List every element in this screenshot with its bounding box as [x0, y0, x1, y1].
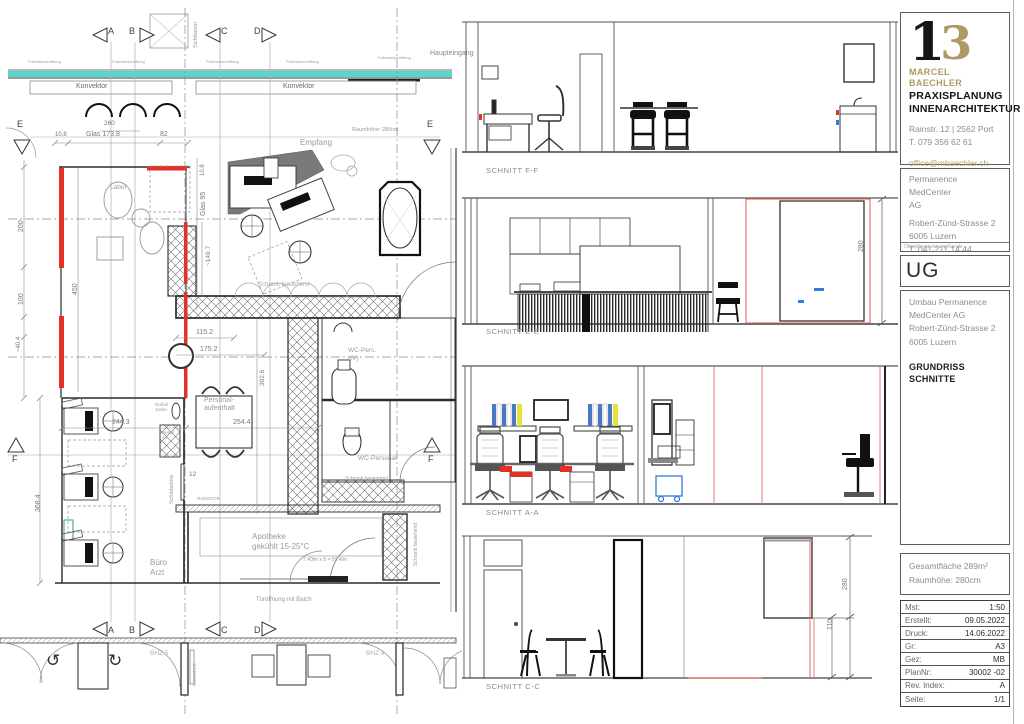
- dim-368-4: 368.4: [35, 494, 42, 512]
- row-label: Druck:: [905, 629, 928, 638]
- table-row: Gez: MB: [901, 653, 1009, 666]
- label-folien-2: Folienbeschriftung: [112, 60, 145, 65]
- logo-box: 1 3 MARCEL BAECHLER PRAXISPLANUNG INNENA…: [900, 12, 1010, 165]
- label-tueroeffnung: Türöffnung mit Batch: [256, 597, 312, 604]
- ee-red-room-outline: [746, 196, 886, 326]
- sichtbeton-element: [150, 14, 188, 48]
- row-label: Seite:: [905, 695, 925, 704]
- label-folien-1: Folienbeschriftung: [28, 60, 61, 65]
- aa-black-chair: [842, 434, 874, 497]
- oval-fixture: [380, 182, 420, 255]
- room-label-konvektor-left: Konvektor: [76, 83, 108, 91]
- section-marker-d-top: D: [254, 27, 261, 36]
- row-value: 30002 -02: [969, 668, 1005, 677]
- row-label: Mst:: [905, 603, 920, 612]
- cc-door: [484, 540, 522, 678]
- room-label-konvektor-right: Konvektor: [283, 83, 315, 91]
- table-row: Seite: 1/1: [901, 693, 1009, 706]
- aa-monitor: [520, 436, 536, 462]
- row-label: Rev. Index:: [905, 681, 945, 690]
- section-marker-e-left: E: [17, 120, 23, 129]
- rotation-arrow-cw-icon: ↻: [108, 652, 122, 669]
- exam-room-furniture: [6, 104, 180, 260]
- cc-tall-cabinet: [614, 540, 642, 678]
- plan-sheet: ↺ ↻ Konvektor Konvektor Sichtbeton Haupt…: [0, 0, 1024, 724]
- aa-lab-unit: [648, 400, 694, 502]
- ff-stools: [620, 102, 698, 150]
- facade-window-band: [8, 70, 452, 94]
- label-schrank-apotheke: Schrank bestehend: [413, 523, 419, 566]
- cc-table-chairs: [520, 630, 609, 677]
- rotation-arrow-ccw-icon: ↺: [46, 652, 60, 669]
- dim-glas95-10-8: 10.8: [200, 164, 206, 176]
- label-regal: Regal A4: [162, 430, 174, 441]
- client-box: Permanence MedCenter AG Robert-Zünd-Stra…: [900, 168, 1010, 252]
- area-height: Raumhöhe: 280cm: [909, 574, 1001, 588]
- row-value: 09.05.2022: [965, 616, 1005, 625]
- label-sichtbeton: Sichtbeton: [193, 22, 200, 48]
- section-marker-a-bottom: A: [108, 626, 114, 635]
- section-marker-f-right: F: [428, 455, 434, 464]
- table-row: Mst: 1:50: [901, 601, 1009, 614]
- schnitt-ff-drawing: [462, 14, 898, 168]
- label-folien-5: Folienbeschriftung: [378, 56, 411, 61]
- ee-chair: [716, 282, 740, 322]
- dim-149-7: ~149.7: [206, 246, 213, 266]
- label-schrank-wc: Schrank bestehend: [345, 476, 388, 482]
- row-label: Gez:: [905, 655, 922, 664]
- area-total: Gesamtfläche 289m²: [909, 560, 1001, 574]
- row-label: Erstellt:: [905, 616, 932, 625]
- section-marker-a-top: A: [108, 27, 114, 36]
- dim-254-4: 254.4: [233, 419, 251, 426]
- table-row: PlanNr: 30002 -02: [901, 666, 1009, 679]
- room-label-apotheke: Apotheke gekühlt 15-25°C: [252, 532, 309, 551]
- floor-plan-linework: [0, 0, 462, 724]
- row-value: 1:50: [989, 603, 1005, 612]
- schnitt-aa-drawing: [462, 360, 898, 518]
- aa-red-wall-lines: [714, 366, 880, 504]
- section-marker-b-bottom: B: [129, 626, 135, 635]
- row-value: 1/1: [994, 695, 1005, 704]
- company-line2: INNENARCHITEKTUR: [909, 103, 1001, 116]
- schnitt-cc-drawing: [462, 528, 898, 696]
- ff-desk-workplace: [479, 66, 563, 152]
- dim-115-2: 115.2: [196, 329, 213, 336]
- company-line1: PRAXISPLANUNG: [909, 90, 1001, 103]
- schnitt-ee-drawing: [462, 192, 898, 332]
- room-label-labor: Labor: [110, 184, 127, 192]
- label-schnitt-cc: SCHNITT C-C: [486, 682, 540, 691]
- ee-reception-counter: [510, 218, 712, 332]
- page-border: [1013, 0, 1014, 724]
- project-box: Umbau Permanence MedCenter AG Robert-Zün…: [900, 290, 1010, 545]
- room-label-bhz4: BHZ 4: [366, 650, 384, 658]
- client-name: Permanence MedCenter AG: [909, 173, 1001, 213]
- area-box: Gesamtfläche 289m² Raumhöhe: 280cm: [900, 553, 1010, 595]
- row-value: 14.06.2022: [965, 629, 1005, 638]
- room-label-buero-arzt: Büro Arzt: [150, 558, 167, 577]
- dim-glas-173-8: Glas 173.8: [86, 131, 120, 138]
- client-street: Robert-Zünd-Strasse 2: [909, 217, 1001, 230]
- label-schnitt-aa: SCHNITT A-A: [486, 508, 539, 517]
- room-label-wc-pers: WC-Pers. (IV): [348, 347, 376, 363]
- label-radiator-2: RADIATOR: [192, 663, 197, 686]
- table-row: Gr: A3: [901, 640, 1009, 653]
- plan-info-table: Mst: 1:50 Erstellt: 09.05.2022 Druck: 14…: [900, 600, 1010, 707]
- project-address: Umbau Permanence MedCenter AG Robert-Zün…: [909, 296, 1001, 349]
- table-row: Druck: 14.06.2022: [901, 627, 1009, 640]
- dim-200: 200: [18, 220, 25, 232]
- table-row: Erstellt: 09.05.2022: [901, 614, 1009, 627]
- aa-office-chairs: [475, 427, 625, 502]
- row-label: PlanNr:: [905, 668, 932, 677]
- dim-244-3: 244.3: [112, 419, 130, 426]
- center-lines: [8, 8, 456, 716]
- dim-40-4: ~40.4: [16, 337, 22, 352]
- label-schnitt-ff: SCHNITT F-F: [486, 166, 539, 175]
- guide-lines: [111, 42, 270, 622]
- section-marker-f-left: F: [12, 455, 18, 464]
- label-folien-4: Folienbeschriftung: [286, 60, 319, 65]
- label-radiator: RADIATOR: [197, 496, 220, 501]
- company-phone: T. 079 356 62 61: [909, 136, 1001, 149]
- dim-ee-280: 280: [858, 240, 865, 252]
- dim-cc-110: 110: [827, 619, 834, 630]
- row-label: Gr:: [905, 642, 916, 651]
- room-label-wc-personal: WC-Personal: [358, 455, 397, 463]
- label-raumhoehe: Raumhöhe: 280cm: [352, 127, 398, 134]
- ff-door: [580, 54, 602, 152]
- room-label-personalaufenthalt: Personal- aufenthalt: [204, 397, 235, 414]
- company-logo: 1 3: [909, 21, 1001, 65]
- table-row: Rev. Index: A: [901, 680, 1009, 693]
- logo-monogram-gold: 3: [940, 24, 972, 63]
- dim-100: 100: [18, 293, 25, 305]
- dim-82: 82: [160, 131, 168, 138]
- label-apotheke-dim: 7.40lm x 8 = 59.4lm: [303, 557, 347, 563]
- room-label-bhz5: BHZ 5: [150, 650, 168, 658]
- label-notfall: Notfall Jacke: [155, 402, 168, 413]
- dim-392-6: 392.6: [260, 370, 267, 386]
- section-marker-b-top: B: [129, 27, 135, 36]
- ff-cabinet: [836, 44, 876, 152]
- label-folien-3: Folienbeschriftung: [206, 60, 239, 65]
- dim-10-8: 10.8: [55, 132, 67, 138]
- level-box: UG: [900, 255, 1010, 287]
- row-value: A: [1000, 681, 1005, 690]
- row-value: A3: [995, 642, 1005, 651]
- client-city: 6005 Luzern: [909, 230, 1001, 243]
- company-address: Rainstr. 12 | 2562 Port: [909, 123, 1001, 136]
- client-caption: Objektbezeichnung/Kunde: [901, 242, 1009, 251]
- dim-glas-95: Glas 95: [200, 192, 207, 216]
- dim-cc-280: 280: [842, 578, 849, 590]
- label-schiebetuere: Schiebetüre: [169, 475, 176, 504]
- section-marker-c-top: C: [221, 27, 228, 36]
- label-schnitt-ee: SCHNITT E-E: [486, 327, 540, 336]
- company-name: MARCEL BAECHLER: [909, 67, 1001, 90]
- bottom-strip: [0, 638, 462, 695]
- section-marker-e-right: E: [427, 120, 433, 129]
- dim-12: 12: [189, 472, 196, 479]
- plan-title: GRUNDRISS SCHNITTE: [909, 361, 1001, 385]
- label-schrank-empfang: Schrank bestehend: [258, 282, 310, 289]
- dim-175-2: 175.2: [200, 346, 218, 353]
- section-marker-c-bottom: C: [221, 626, 228, 635]
- section-marker-d-bottom: D: [254, 626, 261, 635]
- room-label-empfang: Empfang: [300, 138, 332, 148]
- cc-window: [764, 534, 854, 680]
- level-label: UG: [901, 256, 1009, 286]
- dim-260: 260: [104, 121, 115, 128]
- row-value: MB: [993, 655, 1005, 664]
- dim-450: 450: [72, 283, 79, 295]
